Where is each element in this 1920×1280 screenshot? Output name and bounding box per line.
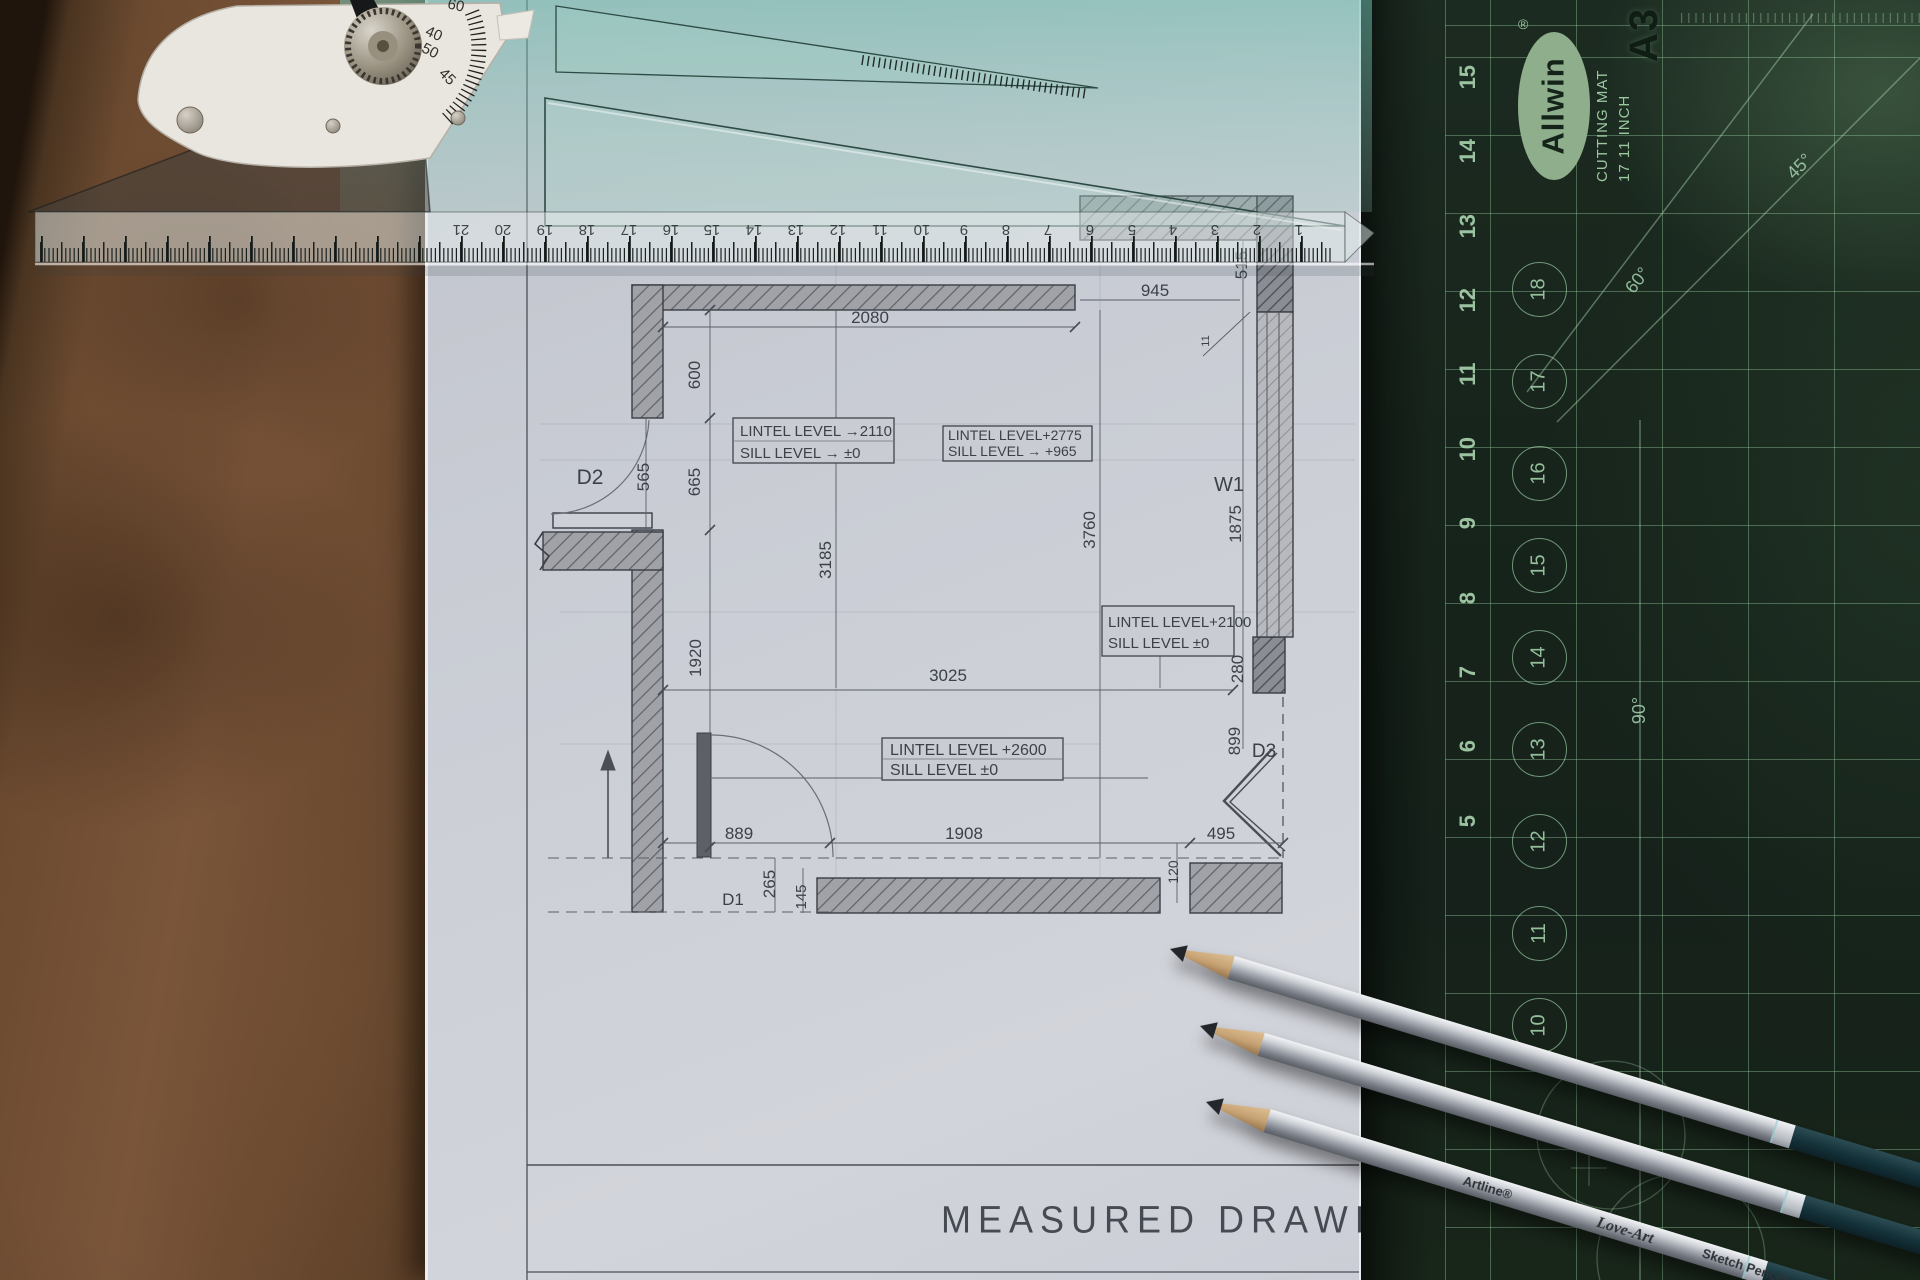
ruler-number: 5 — [1111, 212, 1153, 238]
mat-scale-numbers: 15141312111098765 — [1448, 40, 1488, 858]
mat-circle-number: 12 — [1512, 814, 1567, 869]
paper-edge-highlight — [425, 0, 428, 1280]
mat-scale-number: 12 — [1431, 280, 1505, 320]
photo-scene: 2080 945 515 11 600 565 665 1920 3185 37… — [0, 0, 1920, 1280]
mat-scale-number: 9 — [1431, 503, 1505, 543]
ruler-number: 1 — [1278, 212, 1320, 238]
ruler-number: 18 — [566, 212, 608, 238]
mat-product-text: CUTTING MAT — [1594, 70, 1611, 182]
ruler-number: 11 — [859, 212, 901, 238]
ruler-number: 21 — [440, 212, 482, 238]
ruler-number: 7 — [1027, 212, 1069, 238]
ruler-number: 10 — [901, 212, 943, 238]
mat-circle-number: 18 — [1512, 262, 1567, 317]
mat-scale-number: 10 — [1431, 429, 1505, 469]
ruler-number: 17 — [608, 212, 650, 238]
mat-circle-number: 15 — [1512, 538, 1567, 593]
ruler-number: 2 — [1236, 212, 1278, 238]
mat-circle-number: 14 — [1512, 630, 1567, 685]
ruler-number: 6 — [1069, 212, 1111, 238]
mat-format-text: A3 — [1622, 7, 1667, 62]
mat-brand-logo: Allwin — [1518, 32, 1590, 180]
drawing-paper-sheet — [425, 0, 1361, 1280]
ruler-number: 4 — [1152, 212, 1194, 238]
ruler-number: 14 — [733, 212, 775, 238]
mat-scale-number: 13 — [1431, 206, 1505, 246]
ruler-number: 16 — [650, 212, 692, 238]
mat-size-text: 17 11 INCH — [1616, 95, 1633, 182]
mat-scale-number: 14 — [1431, 132, 1505, 172]
mat-brand-text: Allwin — [1536, 57, 1572, 154]
ruler-number: 15 — [691, 212, 733, 238]
mat-circle-number: 16 — [1512, 446, 1567, 501]
ruler-number: 12 — [817, 212, 859, 238]
mat-circle-numbers: 181716151413121110 — [1512, 262, 1567, 1053]
mat-scale-number: 15 — [1431, 57, 1505, 97]
ruler-number-row: 212019181716151413121110987654321 — [440, 212, 1320, 238]
ruler-number: 3 — [1194, 212, 1236, 238]
mat-scale-number: 5 — [1431, 801, 1505, 841]
mat-scale-number: 8 — [1431, 578, 1505, 618]
registered-mark-icon: ® — [1518, 16, 1528, 32]
mat-angle-90-label: 90° — [1629, 697, 1650, 724]
ruler-number: 13 — [775, 212, 817, 238]
mat-scale-number: 11 — [1431, 355, 1505, 395]
ruler-number: 19 — [524, 212, 566, 238]
ruler-number: 20 — [482, 212, 524, 238]
mat-circle-number: 13 — [1512, 722, 1567, 777]
mat-scale-number: 7 — [1431, 652, 1505, 692]
mat-scale-number: 6 — [1431, 726, 1505, 766]
ruler-number: 8 — [985, 212, 1027, 238]
ruler-number: 9 — [943, 212, 985, 238]
mat-circle-number: 17 — [1512, 354, 1567, 409]
mat-circle-number: 11 — [1512, 906, 1567, 961]
